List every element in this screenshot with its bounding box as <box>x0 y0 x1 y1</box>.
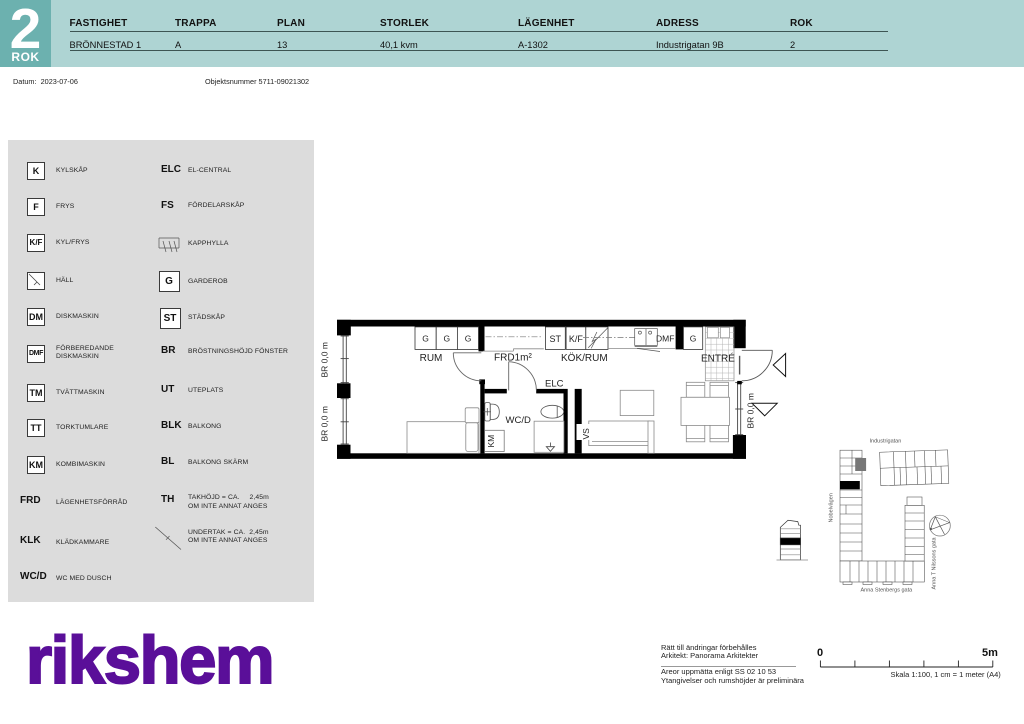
svg-text:G: G <box>422 334 429 344</box>
svg-text:KÖK/RUM: KÖK/RUM <box>561 352 608 364</box>
svg-text:ST: ST <box>550 334 562 344</box>
svg-text:DMF: DMF <box>656 334 674 344</box>
svg-text:WC/D: WC/D <box>506 415 531 426</box>
svg-text:ELC: ELC <box>545 379 564 390</box>
svg-text:Nobelvägen: Nobelvägen <box>829 493 835 522</box>
svg-text:FRD1m²: FRD1m² <box>494 353 532 364</box>
svg-text:Anna Stenbergs gata: Anna Stenbergs gata <box>861 588 914 594</box>
svg-text:RUM: RUM <box>420 353 443 364</box>
svg-text:BR 0,0 m: BR 0,0 m <box>746 393 756 428</box>
svg-text:VS: VS <box>581 428 591 440</box>
svg-text:Industrigatan: Industrigatan <box>870 439 902 445</box>
svg-text:G: G <box>443 334 450 344</box>
svg-text:G: G <box>690 334 697 344</box>
svg-text:Anna T Nilssons gata: Anna T Nilssons gata <box>932 536 938 589</box>
svg-text:K/F: K/F <box>569 334 584 344</box>
svg-text:G: G <box>465 334 472 344</box>
svg-text:BR 0,0 m: BR 0,0 m <box>320 406 330 441</box>
svg-text:BR 0,0 m: BR 0,0 m <box>320 342 330 377</box>
svg-text:KM: KM <box>486 435 496 448</box>
svg-text:ENTRÉ: ENTRÉ <box>701 352 735 365</box>
